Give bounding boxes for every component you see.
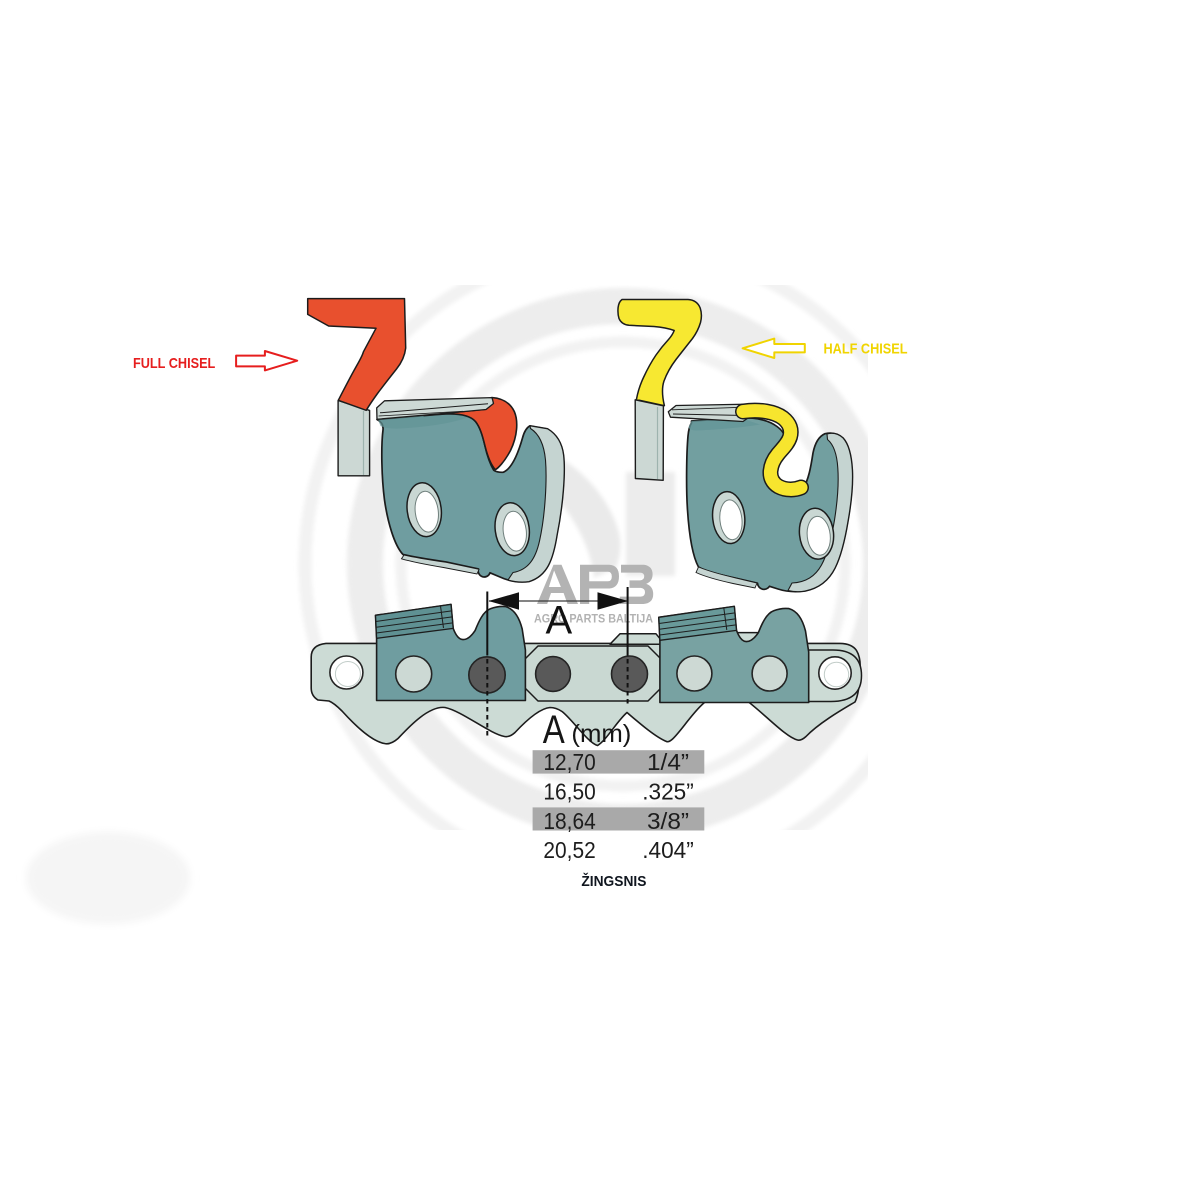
svg-text:16,50: 16,50 [543, 778, 595, 804]
svg-text:18,64: 18,64 [543, 808, 595, 834]
svg-text:.404”: .404” [642, 837, 694, 863]
svg-text:12,70: 12,70 [543, 749, 595, 775]
svg-text:ŽINGSNIS: ŽINGSNIS [581, 872, 646, 890]
svg-text:A: A [543, 708, 565, 752]
svg-text:A: A [546, 599, 573, 643]
svg-text:20,52: 20,52 [543, 837, 595, 863]
svg-text:(mm): (mm) [571, 720, 631, 748]
svg-text:3/8”: 3/8” [647, 808, 689, 834]
svg-text:HALF CHISEL: HALF CHISEL [824, 341, 908, 357]
svg-text:1/4”: 1/4” [647, 749, 689, 775]
svg-text:FULL CHISEL: FULL CHISEL [133, 356, 215, 372]
svg-text:.325”: .325” [642, 778, 694, 804]
